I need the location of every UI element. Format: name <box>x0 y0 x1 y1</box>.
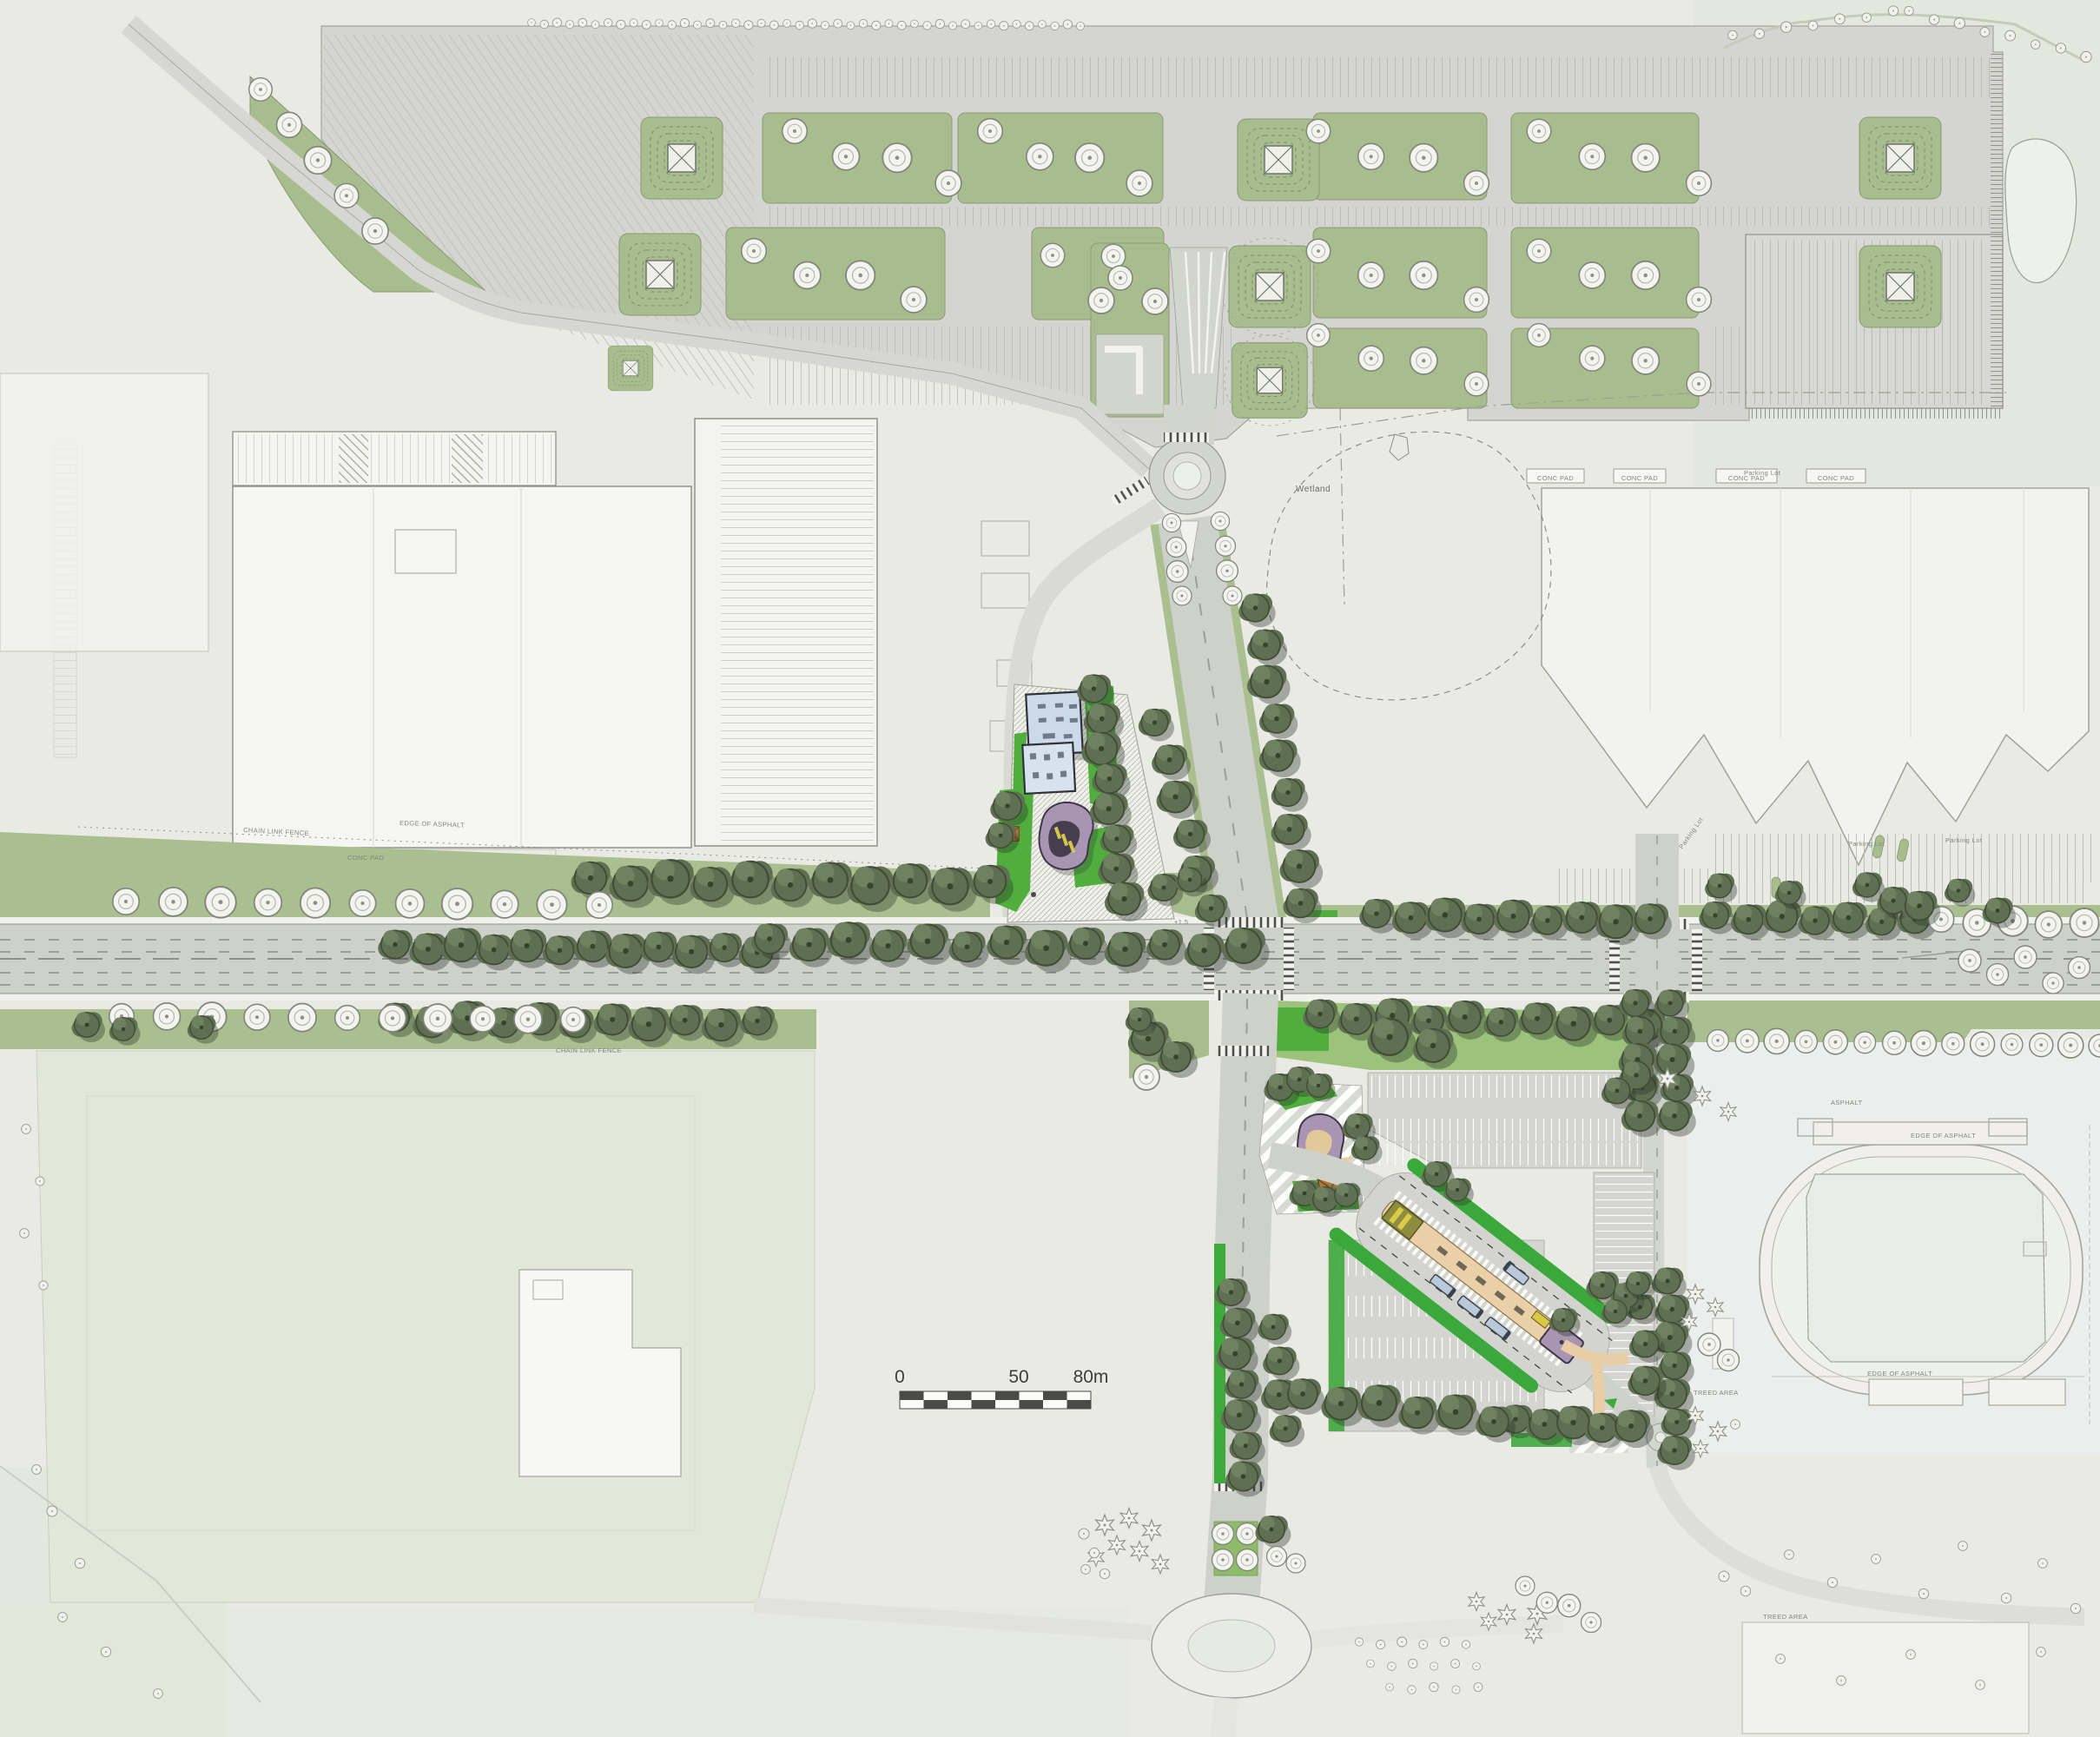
asphalt-label: ASPHALT <box>1831 1099 1862 1106</box>
tree-symbol <box>1582 1613 1601 1633</box>
tree-symbol <box>2037 1648 2046 1657</box>
tree-symbol <box>1776 1654 1786 1664</box>
tree-symbol <box>1108 266 1133 290</box>
tree-symbol <box>1410 347 1437 374</box>
tree-symbol <box>1397 1637 1407 1647</box>
tree-symbol <box>910 20 918 28</box>
tree-symbol <box>578 18 587 27</box>
tree-symbol <box>586 892 612 918</box>
track-infield <box>1806 1174 2045 1362</box>
tree-symbol <box>1038 20 1046 28</box>
tree-symbol <box>249 78 273 102</box>
tree-symbol <box>744 21 753 30</box>
edge-of-asphalt-label: EDGE OF ASPHALT <box>1867 1370 1932 1377</box>
tree-symbol <box>2001 1593 2011 1602</box>
tree-symbol <box>1101 244 1126 268</box>
tree-symbol <box>2081 51 2091 62</box>
tree-symbol <box>1075 143 1104 172</box>
tree-symbol <box>2069 957 2090 979</box>
tree-symbol <box>1267 1547 1287 1567</box>
tree-symbol <box>978 119 1003 144</box>
tree-symbol <box>1632 347 1659 374</box>
tree-symbol <box>808 19 816 28</box>
tree-symbol <box>783 19 791 27</box>
tree-symbol <box>1872 1555 1881 1564</box>
tree-symbol <box>1728 30 1737 39</box>
wetland-label: Wetland <box>1296 485 1331 494</box>
tree-symbol <box>1987 964 2009 986</box>
tree-symbol <box>668 21 677 30</box>
tree-symbol <box>1854 1032 1876 1053</box>
tree-symbol <box>833 143 860 170</box>
tree-symbol <box>1823 1030 1847 1054</box>
tree-symbol <box>974 22 982 30</box>
tree-symbol <box>2031 40 2039 49</box>
tree-symbol <box>885 20 893 28</box>
tree-symbol <box>561 1007 586 1033</box>
tree-symbol <box>859 19 868 28</box>
tree-symbol <box>349 890 375 916</box>
tree-symbol <box>1216 536 1236 556</box>
tree-symbol <box>1081 1565 1091 1575</box>
tree-symbol <box>1409 1659 1417 1668</box>
tree-symbol <box>1142 288 1168 314</box>
tree-symbol <box>528 19 536 27</box>
tree-symbol <box>159 888 188 916</box>
tree-symbol <box>630 19 637 27</box>
tree-symbol <box>1474 1683 1483 1692</box>
tree-symbol <box>288 1004 316 1032</box>
chain-link-fence-label: CHAIN LINK FENCE <box>556 1047 622 1054</box>
tree-symbol <box>901 287 927 313</box>
tree-symbol <box>1040 243 1065 267</box>
tree-symbol <box>731 19 740 28</box>
tree-symbol <box>2001 1034 2023 1055</box>
tree-symbol <box>961 20 970 29</box>
tree-symbol <box>1358 143 1384 169</box>
tree-symbol <box>334 183 359 208</box>
tree-symbol <box>1911 1031 1936 1056</box>
tree-symbol <box>1837 1676 1846 1686</box>
tree-symbol <box>1906 1650 1916 1660</box>
tree-symbol <box>380 1005 406 1032</box>
tree-symbol <box>1100 1569 1109 1578</box>
tree-symbol <box>47 1506 57 1516</box>
tree-symbol <box>1808 21 1818 30</box>
tree-symbol <box>1307 324 1331 347</box>
tree-symbol <box>1013 20 1020 28</box>
conc-pad-label: CONC PAD <box>347 854 384 862</box>
tree-symbol <box>1781 22 1792 32</box>
tree-symbol <box>1834 14 1845 24</box>
tree-symbol <box>1452 1686 1460 1694</box>
tree-symbol <box>1536 1592 1557 1613</box>
tree-symbol <box>1687 287 1712 313</box>
parking-lot-label: Parking Lot <box>1744 469 1781 477</box>
tree-symbol <box>1719 1571 1729 1582</box>
tree-symbol <box>1212 1549 1234 1571</box>
tree-symbol <box>1377 1640 1385 1648</box>
tree-symbol <box>2014 946 2037 968</box>
tree-symbol <box>796 21 804 30</box>
tree-symbol <box>1632 261 1660 289</box>
tree-symbol <box>1162 513 1180 532</box>
scale-fifty: 50 <box>1008 1367 1028 1387</box>
tree-symbol <box>1388 1662 1397 1671</box>
tree-symbol <box>1358 346 1383 371</box>
tree-symbol <box>1464 287 1489 313</box>
tree-symbol <box>1223 586 1242 605</box>
tree-symbol <box>1888 6 1898 16</box>
tree-symbol <box>1976 1681 1985 1690</box>
tree-symbol <box>1698 1333 1720 1356</box>
tree-symbol <box>2058 1033 2083 1058</box>
tree-symbol <box>1980 27 1990 36</box>
tree-symbol <box>39 1281 48 1290</box>
tree-symbol <box>1410 144 1437 172</box>
sports-field <box>36 1051 815 1602</box>
zebra-crossing <box>1164 433 1209 442</box>
tree-symbol <box>1133 1064 1159 1090</box>
tree-symbol <box>1166 538 1186 558</box>
tree-symbol <box>300 888 330 917</box>
tree-symbol <box>1217 560 1238 582</box>
tree-symbol <box>1862 13 1871 22</box>
tree-symbol <box>1464 171 1489 196</box>
tree-symbol <box>58 1613 68 1622</box>
tree-symbol <box>1883 1031 1906 1054</box>
tree-symbol <box>1764 1028 1789 1053</box>
parking-lot-label: Parking Lot <box>1945 836 1983 844</box>
tree-symbol <box>22 1125 31 1134</box>
tree-symbol <box>783 119 808 144</box>
tree-symbol <box>32 1465 42 1475</box>
tree-symbol <box>1367 1660 1375 1668</box>
tree-symbol <box>1355 1638 1363 1646</box>
tree-symbol <box>935 170 961 196</box>
tree-symbol <box>1462 1641 1469 1648</box>
tree-symbol <box>1795 1030 1818 1053</box>
tree-symbol <box>1025 22 1033 30</box>
tree-symbol <box>1000 22 1008 30</box>
tree-symbol <box>1358 262 1384 288</box>
tree-symbol <box>304 147 331 174</box>
tree-symbol <box>1579 143 1605 169</box>
tree-symbol <box>948 22 956 30</box>
tree-symbol <box>1306 119 1331 143</box>
tree-symbol <box>1579 262 1605 288</box>
tree-symbol <box>1558 1595 1581 1617</box>
tree-symbol <box>1430 1662 1438 1670</box>
tree-symbol <box>1063 20 1072 29</box>
tree-symbol <box>935 19 944 28</box>
tree-symbol <box>742 239 767 264</box>
tree-symbol <box>1929 15 1938 24</box>
tree-symbol <box>846 261 875 289</box>
tree-symbol <box>1731 1420 1740 1430</box>
tree-symbol <box>1089 1548 1099 1557</box>
tree-symbol <box>656 19 664 27</box>
tree-symbol <box>604 19 612 28</box>
tree-symbol <box>154 1003 181 1030</box>
tree-symbol <box>1286 1554 1305 1573</box>
tree-symbol <box>1735 1029 1759 1053</box>
tree-symbol <box>101 1647 110 1656</box>
tree-symbol <box>1386 1683 1394 1691</box>
tree-symbol <box>2070 908 2098 937</box>
tree-symbol <box>642 20 650 29</box>
tree-symbol <box>821 21 829 29</box>
scale-zero: 0 <box>895 1367 905 1387</box>
tree-symbol <box>617 20 625 29</box>
tree-symbol <box>1088 287 1114 314</box>
treed-area-label: TREED AREA <box>1694 1389 1739 1397</box>
pavilion <box>1989 1379 2065 1405</box>
tree-symbol <box>254 888 282 916</box>
tree-symbol <box>1687 171 1712 196</box>
tree-symbol <box>1971 1032 1995 1056</box>
tree-symbol <box>1905 6 1913 15</box>
edge-of-asphalt-label: EDGE OF ASPHALT <box>1911 1132 1976 1139</box>
tree-symbol <box>442 888 473 920</box>
tree-symbol <box>75 1558 84 1568</box>
tree-symbol <box>205 887 236 918</box>
tree-symbol <box>1527 239 1551 263</box>
tree-symbol <box>1051 22 1060 30</box>
tree-symbol <box>1516 1576 1535 1595</box>
tree-symbol <box>1237 1523 1258 1545</box>
tree-symbol <box>1954 18 1965 29</box>
tree-symbol <box>1237 1549 1258 1571</box>
tree-symbol <box>1785 1550 1794 1560</box>
tree-symbol <box>923 22 932 30</box>
tree-symbol <box>1632 144 1660 172</box>
tree-symbol <box>540 20 549 29</box>
tree-symbol <box>2056 43 2065 53</box>
scale-bar-checker <box>900 1391 1091 1409</box>
tree-symbol <box>1408 1686 1417 1694</box>
tree-symbol <box>1440 1637 1450 1647</box>
tree-symbol <box>1166 561 1188 583</box>
tree-symbol <box>1528 324 1551 347</box>
pavilion <box>1869 1379 1963 1405</box>
tree-symbol <box>2030 1034 2053 1057</box>
tree-symbol <box>2043 973 2064 994</box>
tree-symbol <box>987 20 995 29</box>
tree-symbol <box>423 1004 452 1033</box>
tree-symbol <box>36 1177 44 1186</box>
tree-symbol <box>537 889 566 919</box>
site-plan-map: 0 50 80m Wetland CONC PAD CONC PAD CONC … <box>0 0 2100 1737</box>
tree-symbol <box>244 1004 270 1030</box>
tree-symbol <box>1410 261 1437 289</box>
tree-symbol <box>154 1689 163 1699</box>
tree-symbol <box>1464 372 1489 396</box>
level-label: +1.5 <box>1641 908 1655 915</box>
warehouse-building <box>233 486 691 848</box>
tree-symbol <box>1942 1033 1965 1055</box>
scale-eighty: 80m <box>1073 1367 1109 1387</box>
tree-symbol <box>1580 346 1605 371</box>
tree-symbol <box>1527 119 1551 143</box>
treed-area-label: TREED AREA <box>1763 1613 1808 1621</box>
tree-symbol <box>1126 170 1152 196</box>
tree-symbol <box>1172 586 1192 605</box>
conc-pad-label: CONC PAD <box>1621 474 1658 482</box>
tree-symbol <box>1754 29 1764 38</box>
tree-symbol <box>1451 1660 1460 1668</box>
tree-symbol <box>872 21 881 30</box>
tree-symbol <box>396 889 425 918</box>
tree-symbol <box>2070 1603 2080 1613</box>
tree-symbol <box>491 890 518 918</box>
tree-symbol <box>1076 22 1084 30</box>
tree-symbol <box>719 21 727 29</box>
conc-pad-label: CONC PAD <box>1537 474 1574 482</box>
tree-symbol <box>834 19 842 28</box>
tree-symbol <box>591 21 599 29</box>
level-label: +1.5 <box>1174 918 1188 926</box>
tree-symbol <box>552 18 561 27</box>
tree-symbol <box>847 22 855 30</box>
tree-symbol <box>769 21 778 30</box>
tree-symbol <box>514 1006 542 1034</box>
tree-symbol <box>470 1006 496 1032</box>
tree-symbol <box>2005 30 2016 41</box>
tree-symbol <box>680 18 689 27</box>
tree-symbol <box>1827 1577 1837 1587</box>
tree-symbol <box>1958 1542 1968 1551</box>
tree-symbol <box>1079 1529 1089 1539</box>
tree-symbol <box>757 19 765 27</box>
tree-symbol <box>1027 143 1053 170</box>
tree-symbol <box>565 20 573 28</box>
tree-symbol <box>794 262 821 289</box>
tree-symbol <box>1958 949 1981 972</box>
tree-symbol <box>20 1229 30 1238</box>
tree-symbol <box>1473 1662 1481 1670</box>
tree-symbol <box>2035 911 2062 938</box>
tree-symbol <box>1918 1588 1928 1598</box>
tree-symbol <box>706 19 715 28</box>
tree-symbol <box>335 1006 360 1031</box>
conc-pad-label: CONC PAD <box>1818 474 1854 482</box>
parking-lot-label: Parking Lot <box>1848 840 1885 848</box>
tree-symbol <box>277 112 302 137</box>
tree-symbol <box>113 888 139 915</box>
tree-symbol <box>1718 1350 1740 1371</box>
tree-symbol <box>897 21 906 30</box>
tree-symbol <box>1212 1523 1234 1545</box>
tree-symbol <box>362 218 388 244</box>
tree-symbol <box>1306 239 1331 263</box>
tree-symbol <box>2038 1559 2048 1569</box>
tree-symbol <box>1430 1682 1438 1691</box>
tree-symbol <box>693 21 701 29</box>
tree-symbol <box>1707 1030 1729 1052</box>
tree-symbol <box>1740 1586 1750 1595</box>
tree-symbol <box>1211 512 1229 530</box>
tree-symbol <box>882 143 911 172</box>
ghost-building <box>1742 1622 2029 1734</box>
tree-symbol <box>1687 372 1711 396</box>
tree-symbol <box>1419 1641 1428 1649</box>
